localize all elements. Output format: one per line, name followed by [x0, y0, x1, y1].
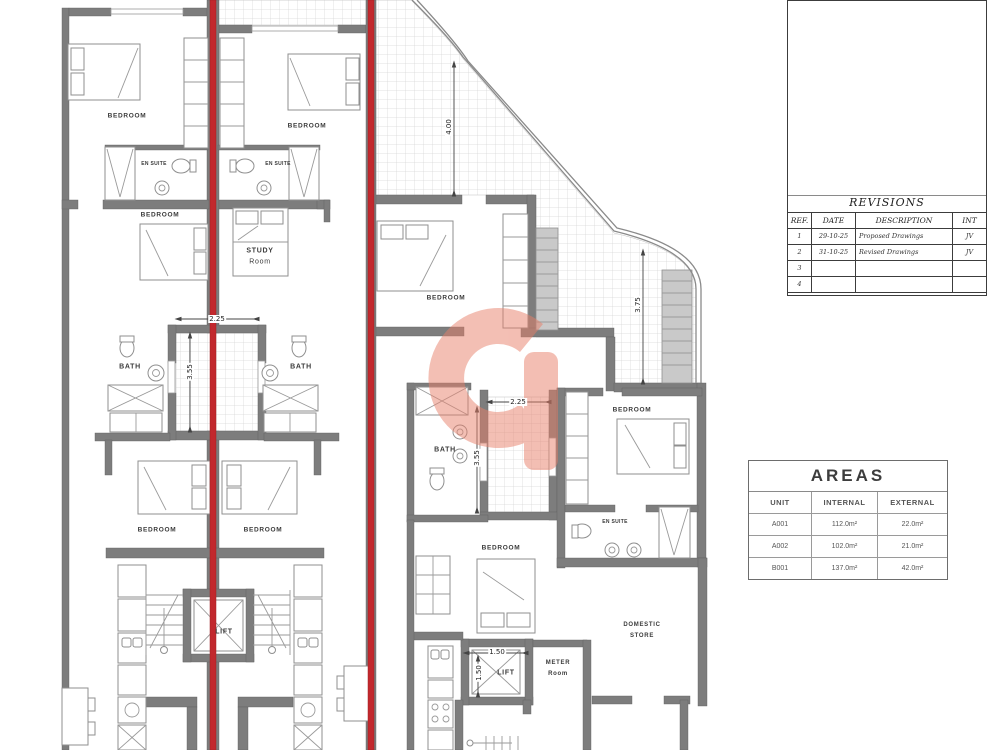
areas-cell: B001 — [749, 558, 812, 579]
room-label-bedroom: BEDROOM — [482, 545, 521, 552]
areas-cell: A001 — [749, 514, 812, 536]
revision-cell — [953, 261, 986, 277]
revision-cell — [856, 277, 953, 293]
sink — [262, 365, 278, 381]
room-label-bedroom: BEDROOM — [108, 113, 147, 120]
areas-cell: 102.0m² — [812, 536, 878, 558]
sink — [257, 181, 271, 195]
title-block-empty — [788, 1, 986, 196]
room-label-en-suite: EN SUITE — [265, 161, 290, 167]
dim-label-2-25: 2.25 — [208, 315, 226, 323]
room-label-bath: BATH — [119, 364, 141, 371]
revision-cell: Proposed Drawings — [856, 229, 953, 245]
toilet — [292, 336, 306, 357]
areas-header-unit: UNIT — [749, 492, 812, 514]
bed — [222, 461, 297, 514]
sink — [148, 365, 164, 381]
room-label-bath: BATH — [290, 364, 312, 371]
revisions-table: REF. DATE DESCRIPTION INT 1 29-10-25 Pro… — [788, 213, 986, 293]
revisions-header-date: DATE — [812, 213, 856, 229]
dim-label-4-00: 4.00 — [445, 118, 453, 136]
sink — [605, 543, 619, 557]
kitchen-units — [118, 565, 453, 750]
areas-cell: A002 — [749, 536, 812, 558]
dim-label-1-50: 1.50 — [488, 648, 506, 656]
room-label-bedroom: BEDROOM — [613, 407, 652, 414]
revision-cell: 29-10-25 — [812, 229, 856, 245]
revision-cell — [812, 261, 856, 277]
areas-cell: 21.0m² — [878, 536, 947, 558]
toilet — [120, 336, 134, 357]
room-label-bedroom: BEDROOM — [244, 527, 283, 534]
room-label-bedroom: BEDROOM — [427, 295, 466, 302]
dim-label-1-50: 1.50 — [475, 664, 483, 682]
revision-cell — [812, 277, 856, 293]
revision-cell: 31-10-25 — [812, 245, 856, 261]
title-block: REVISIONS REF. DATE DESCRIPTION INT 1 29… — [787, 0, 987, 296]
bed — [377, 221, 453, 291]
toilet — [572, 524, 591, 538]
revision-cell: 2 — [788, 245, 812, 261]
shower — [289, 147, 319, 200]
room-label-bedroom: BEDROOM — [288, 123, 327, 130]
room-label-lift: LIFT — [497, 670, 515, 677]
revision-cell: Revised Drawings — [856, 245, 953, 261]
bed — [617, 419, 689, 474]
bed — [288, 54, 360, 110]
revision-cell: 3 — [788, 261, 812, 277]
shower — [105, 147, 135, 200]
room-label-meter-room: METER — [546, 660, 571, 666]
study-bed — [233, 208, 288, 276]
dim-label-3-55: 3.55 — [473, 449, 481, 467]
revision-cell — [856, 261, 953, 277]
shower — [108, 385, 163, 411]
revision-cell: 1 — [788, 229, 812, 245]
room-label-study: STUDY — [246, 248, 273, 255]
revisions-header-ref: REF. — [788, 213, 812, 229]
bed — [68, 44, 140, 100]
areas-cell: 112.0m² — [812, 514, 878, 536]
areas-header-internal: INTERNAL — [812, 492, 878, 514]
dim-label-3-75: 3.75 — [634, 296, 642, 314]
floor-plan-sheet: BEDROOM BEDROOM EN SUITE EN SUITE BEDROO… — [0, 0, 1000, 750]
room-label-en-suite: EN SUITE — [602, 519, 627, 525]
revision-cell: 4 — [788, 277, 812, 293]
bed — [477, 559, 535, 633]
bed — [140, 224, 208, 280]
room-label-bath: BATH — [434, 447, 456, 454]
revisions-title: REVISIONS — [788, 196, 986, 213]
areas-title: AREAS — [749, 461, 947, 492]
room-label-meter-room: Room — [548, 671, 568, 677]
areas-cell: 22.0m² — [878, 514, 947, 536]
dim-label-3-55: 3.55 — [186, 363, 194, 381]
sink — [155, 181, 169, 195]
room-label-en-suite: EN SUITE — [141, 161, 166, 167]
revision-cell — [953, 277, 986, 293]
sink — [627, 543, 641, 557]
shower — [263, 385, 318, 411]
areas-cell: 137.0m² — [812, 558, 878, 579]
room-label-bedroom: BEDROOM — [141, 212, 180, 219]
room-label-domestic-store: DOMESTIC — [623, 622, 660, 628]
revision-cell: JV — [953, 229, 986, 245]
toilet — [230, 159, 254, 173]
areas-header-external: EXTERNAL — [878, 492, 947, 514]
toilet — [172, 159, 196, 173]
room-label-lift: LIFT — [215, 629, 233, 636]
areas-cell: 42.0m² — [878, 558, 947, 579]
bed — [138, 461, 210, 514]
room-label-domestic-store: STORE — [630, 633, 654, 639]
room-label-bedroom: BEDROOM — [138, 527, 177, 534]
toilet — [430, 468, 444, 490]
revisions-header-description: DESCRIPTION — [856, 213, 953, 229]
dim-label-2-25: 2.25 — [509, 398, 527, 406]
revision-cell: JV — [953, 245, 986, 261]
room-label-study-room: Room — [249, 259, 270, 266]
areas-table: AREAS UNIT INTERNAL EXTERNAL A001 112.0m… — [748, 460, 948, 580]
shower — [659, 507, 690, 558]
revisions-header-int: INT — [953, 213, 986, 229]
